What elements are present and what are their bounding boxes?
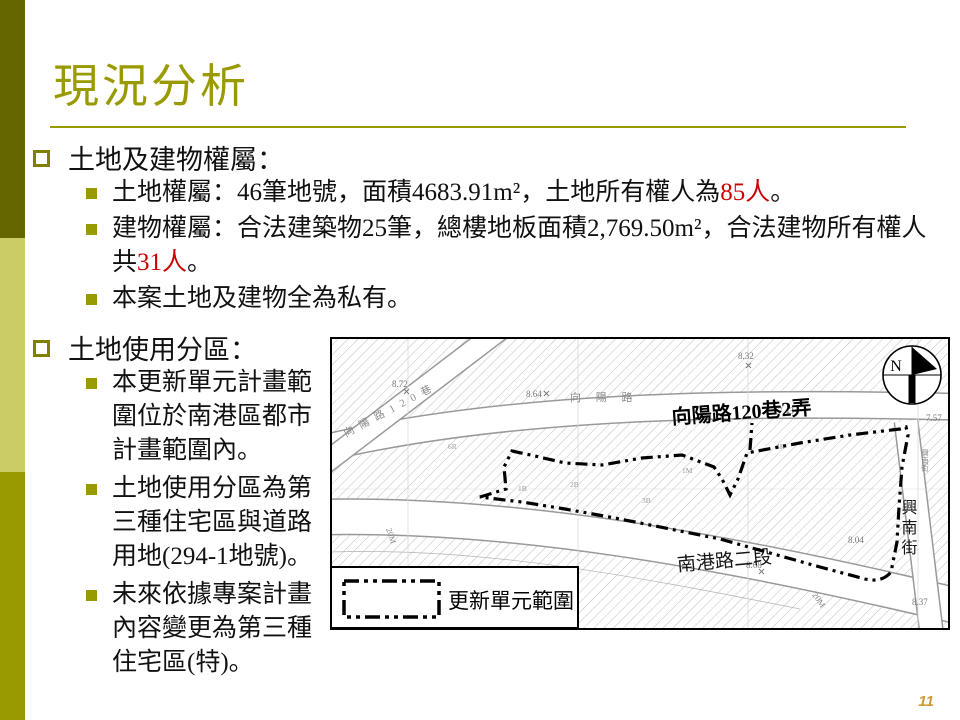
compass-label: N — [890, 358, 902, 375]
list-item: 土地使用分區為第三種住宅區與道路用地(294-1地號)。 — [112, 472, 326, 574]
parcel-label: 3B — [642, 496, 651, 505]
sidebar-accent-light — [0, 238, 25, 472]
road-label: 興南街 — [899, 499, 918, 559]
presentation-slide: 現況分析 土地及建物權屬： 土地權屬：46筆地號，面積4683.91m²，土地所… — [0, 0, 960, 720]
sidebar-accent-dark — [0, 0, 25, 238]
item-text: 。 — [770, 179, 795, 206]
item-text: 未來依據專案計畫內容變更為第三種住宅區(特)。 — [112, 581, 312, 676]
list-item: 建物權屬：合法建築物25筆，總樓地板面積2,769.50m²，合法建物所有權人共… — [112, 212, 934, 280]
legend-label: 更新單元範圍 — [448, 589, 574, 613]
parcel-label: 1B — [518, 484, 527, 493]
parcel-label: 1M — [682, 466, 693, 475]
spot-elevation: 8.72 — [392, 379, 408, 389]
spot-elevation: 8.04 — [848, 535, 864, 545]
spot-elevation: 8.32 — [738, 351, 754, 361]
item-bullet-icon — [86, 590, 97, 601]
spot-elevation: 7.57 — [926, 413, 942, 423]
list-item: 未來依據專案計畫內容變更為第三種住宅區(特)。 — [112, 578, 326, 680]
item-text-highlight: 31人 — [137, 249, 187, 276]
item-bullet-icon — [86, 188, 97, 199]
slide-title: 現況分析 — [53, 50, 249, 116]
list-item: 本案土地及建物全為私有。 — [112, 282, 934, 316]
item-text: 土地使用分區為第三種住宅區與道路用地(294-1地號)。 — [112, 475, 312, 570]
parcel-label: 2B — [570, 480, 579, 489]
item-bullet-icon — [86, 294, 97, 305]
road-label-small: 向 陽 路 — [570, 390, 639, 404]
section-heading: 土地及建物權屬： — [68, 138, 284, 177]
item-text: 建物權屬：合法建築物25筆，總樓地板面積2,769.50m²，合法建物所有權人共 — [112, 215, 926, 276]
list-item: 土地權屬：46筆地號，面積4683.91m²，土地所有權人為85人。 — [112, 176, 934, 210]
parcel-label: 6R — [448, 442, 457, 451]
map-legend: 更新單元範圍 — [331, 567, 578, 628]
item-text: 本案土地及建物全為私有。 — [112, 285, 412, 312]
road-label-small: 興南街 — [920, 448, 929, 473]
north-compass-icon: N — [883, 346, 941, 404]
item-bullet-icon — [86, 484, 97, 495]
item-text: 土地權屬：46筆地號，面積4683.91m²，土地所有權人為 — [112, 179, 720, 206]
cadastral-map: 向 陽 路 1 2 0 巷 向 陽 路 8.72 8.64 8.32 7.43 … — [330, 337, 950, 630]
section-heading: 土地使用分區： — [68, 328, 257, 367]
sidebar-accent-medium — [0, 472, 25, 720]
section-bullet-icon — [33, 150, 50, 167]
page-number: 11 — [918, 693, 934, 710]
section-bullet-icon — [33, 340, 50, 357]
item-text-highlight: 85人 — [720, 179, 770, 206]
spot-elevation: 8.37 — [912, 597, 928, 607]
item-text: 。 — [187, 249, 212, 276]
title-underline — [50, 126, 906, 128]
item-bullet-icon — [86, 378, 97, 389]
item-bullet-icon — [86, 224, 97, 235]
item-text: 本更新單元計畫範圍位於南港區都市計畫範圍內。 — [112, 369, 312, 464]
spot-elevation: 8.64 — [526, 389, 542, 399]
list-item: 本更新單元計畫範圍位於南港區都市計畫範圍內。 — [112, 366, 326, 468]
